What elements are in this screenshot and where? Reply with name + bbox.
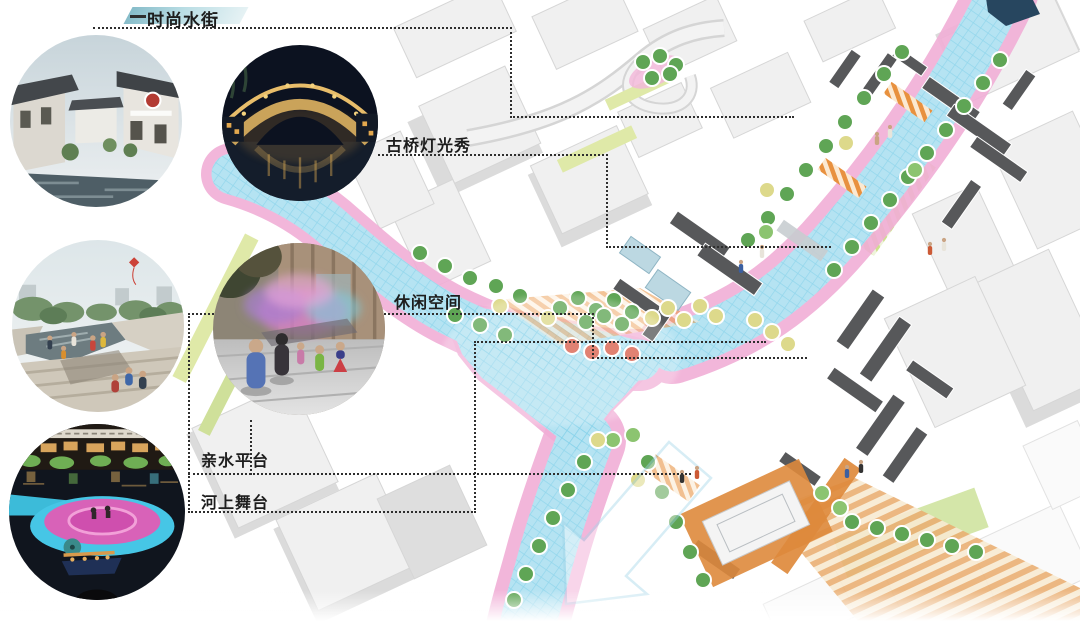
- leader-leisure-space-h2: [592, 357, 807, 359]
- label-highlight-dash: [130, 15, 146, 18]
- leader-bridge-light-show-h2: [606, 246, 831, 248]
- photo-fashion-water-street: [10, 35, 182, 207]
- leader-fashion-water-street-v: [510, 27, 512, 118]
- leader-fashion-water-street-h2: [510, 116, 794, 118]
- callout-label-bridge-light-show: 古桥灯光秀: [386, 132, 471, 156]
- callout-label-leisure-space: 休闲空间: [394, 289, 462, 313]
- photo-bridge-light-show: [222, 45, 378, 201]
- leader-waterfront-platform-h1: [188, 473, 691, 475]
- photo-river-stage: [9, 424, 185, 600]
- leader-leisure-space-v: [592, 313, 594, 359]
- photo-waterfront-platform: [12, 240, 184, 412]
- leader-waterfront-platform-v1: [188, 313, 190, 513]
- photo-leisure-space: [213, 243, 385, 415]
- leader-bridge-light-show-v: [606, 154, 608, 248]
- leader-waterfront-platform-v3: [474, 341, 476, 513]
- callout-label-waterfront-platform: 亲水平台: [201, 447, 269, 471]
- callout-label-fashion-water-street: 时尚水街: [147, 6, 219, 31]
- leader-waterfront-platform-h2: [474, 341, 766, 343]
- callout-label-river-stage: 河上舞台: [201, 489, 269, 513]
- screenshot-root: 时尚水街 古桥灯光秀 休闲空间 亲水平台 河上舞台: [0, 0, 1080, 621]
